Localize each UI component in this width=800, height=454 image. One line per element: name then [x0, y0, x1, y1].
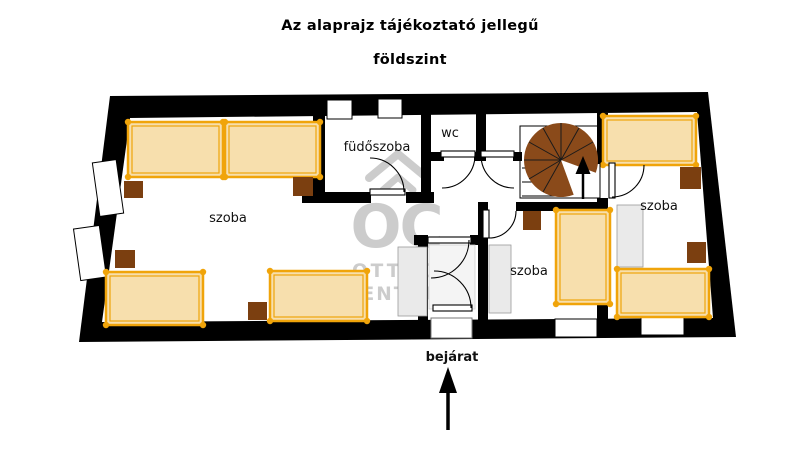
nightstand: [680, 167, 701, 189]
entry-mat: [429, 245, 475, 309]
bed: [125, 119, 226, 180]
wardrobe: [489, 245, 511, 313]
window: [378, 99, 402, 118]
nightstand: [523, 211, 541, 230]
floorplan-page: Az alaprajz tájékoztató jellegű földszin…: [0, 0, 800, 454]
wall-wc-left: [421, 114, 431, 203]
window: [555, 319, 597, 337]
nightstand: [248, 302, 267, 320]
bed: [103, 269, 206, 328]
wall-wc-right: [476, 113, 486, 157]
bed: [614, 266, 712, 320]
label-bathroom: füdőszoba: [344, 140, 411, 155]
nightstand: [115, 250, 135, 268]
bed: [267, 268, 370, 324]
entrance-arrow-icon: [439, 367, 457, 430]
entrance-opening: [431, 318, 472, 338]
wardrobe: [398, 247, 427, 316]
bed: [222, 119, 323, 180]
label-large-room: szoba: [209, 211, 247, 226]
entrance-label: bejárat: [426, 350, 479, 365]
bed: [553, 207, 613, 307]
floorplan-drawing: OC OTTHON CENTRUM OC OTTHON CENTRUM: [0, 0, 800, 454]
label-middle-room: szoba: [510, 264, 548, 279]
wardrobe: [617, 205, 643, 267]
label-wc: wc: [441, 126, 459, 141]
nightstand: [293, 177, 313, 196]
nightstand: [124, 181, 143, 198]
window: [641, 317, 684, 335]
window: [327, 100, 352, 119]
bed: [600, 113, 699, 168]
nightstand: [687, 242, 706, 263]
label-right-room: szoba: [640, 199, 678, 214]
